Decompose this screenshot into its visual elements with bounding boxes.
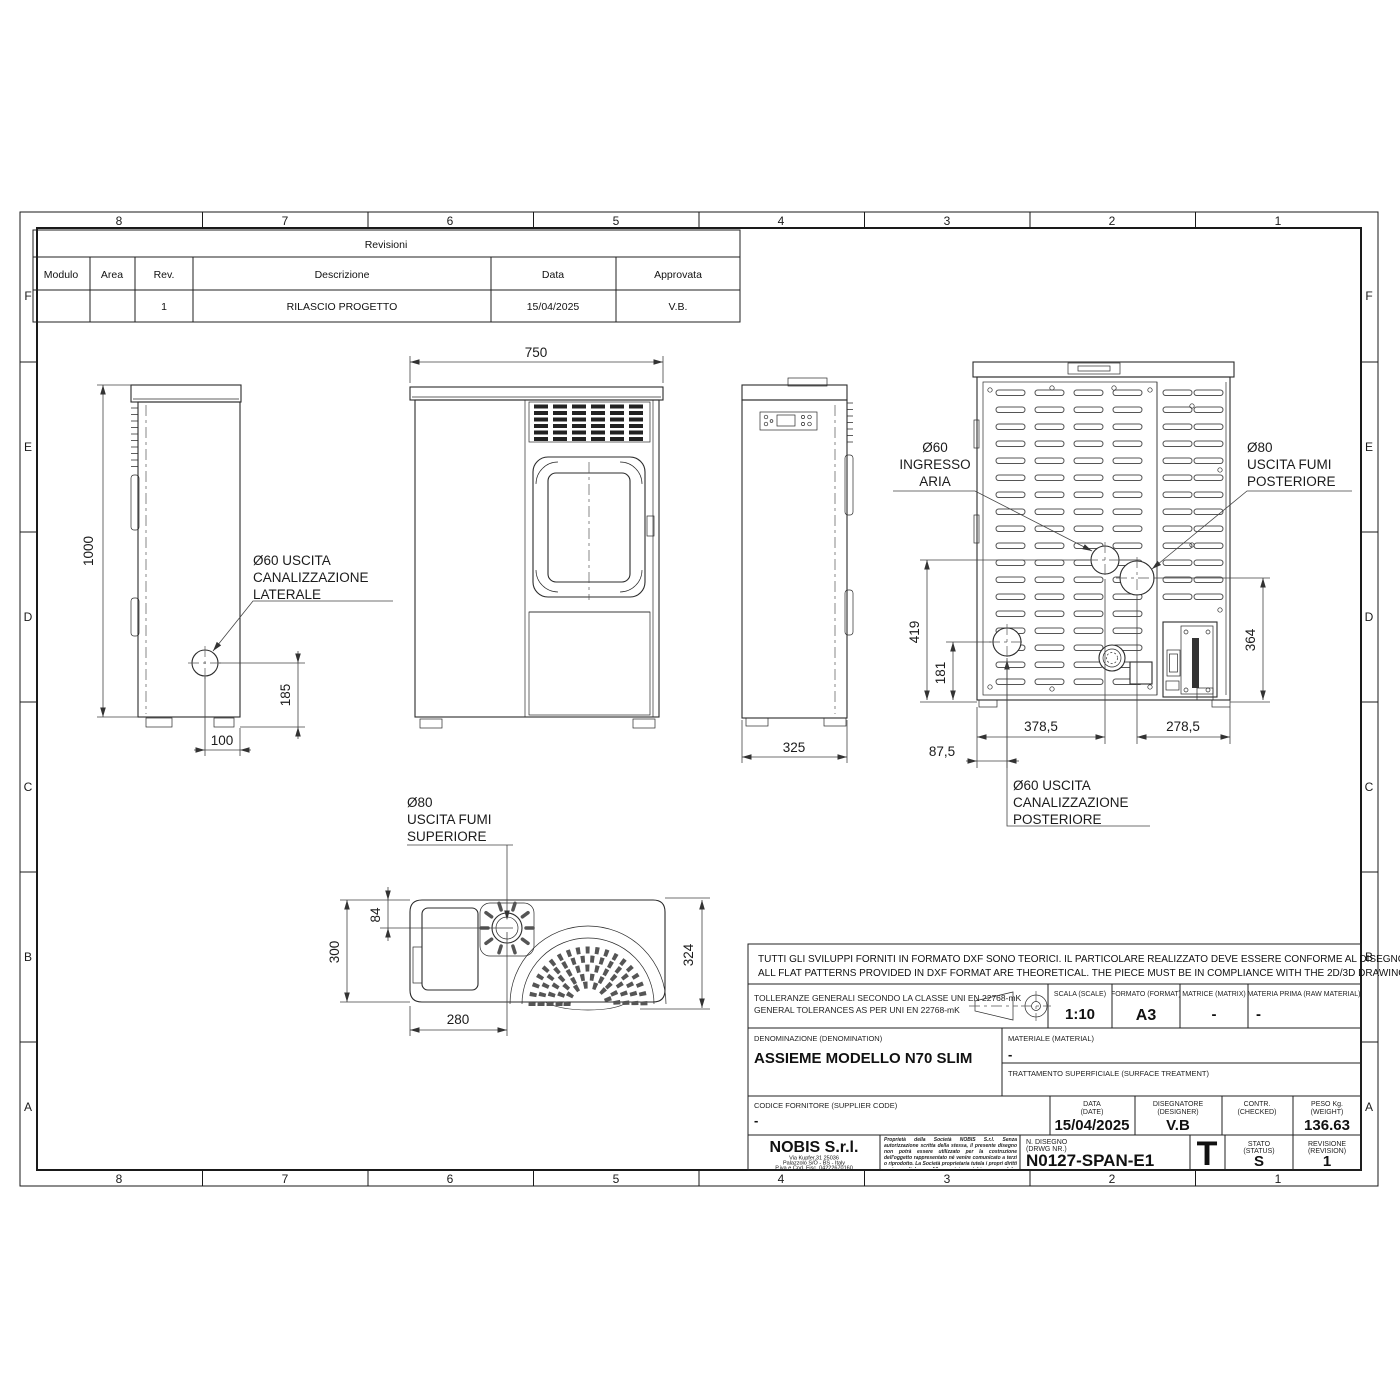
zone-row-right: F xyxy=(1365,289,1372,303)
zone-col-top: 6 xyxy=(447,214,454,228)
air-inlet-label: INGRESSO xyxy=(899,457,970,472)
drawing-sheet: 8 7 6 5 4 3 2 1 8 7 6 5 4 3 2 1 F E D C … xyxy=(0,0,1400,1400)
format-label: FORMATO (FORMAT) xyxy=(1111,991,1181,998)
rev-col-descrizione: Descrizione xyxy=(315,269,370,281)
rev-row-descrizione: RILASCIO PROGETTO xyxy=(287,301,398,313)
denomination-label: DENOMINAZIONE (DENOMINATION) xyxy=(754,1034,883,1043)
dim-300: 300 xyxy=(327,941,342,964)
rev-row-approvata: V.B. xyxy=(669,301,688,313)
zone-col-bottom: 5 xyxy=(613,1172,620,1186)
view-side-right: 325 xyxy=(742,378,853,763)
zone-col-bottom: 8 xyxy=(116,1172,123,1186)
supplier-code-value: - xyxy=(754,1113,758,1128)
rev-col-rev: Rev. xyxy=(154,269,175,281)
dxf-note-en: ALL FLAT PATTERNS PROVIDED IN DXF FORMAT… xyxy=(758,968,1400,979)
denomination-value: ASSIEME MODELLO N70 SLIM xyxy=(754,1050,972,1067)
rear-duct-label: POSTERIORE xyxy=(1013,812,1102,827)
zone-col-top: 2 xyxy=(1109,214,1116,228)
air-inlet-label: Ø60 xyxy=(922,440,948,455)
dxf-note-it: TUTTI GLI SVILUPPI FORNITI IN FORMATO DX… xyxy=(758,954,1400,965)
rear-flue-label: POSTERIORE xyxy=(1247,474,1336,489)
zone-col-bottom: 6 xyxy=(447,1172,454,1186)
dim-419: 419 xyxy=(907,621,922,644)
rev-col-modulo: Modulo xyxy=(44,269,79,281)
sheet-frame xyxy=(20,212,1378,1186)
material-label: MATERIALE (MATERIAL) xyxy=(1008,1034,1094,1043)
dim-364: 364 xyxy=(1243,628,1258,651)
zone-col-bottom: 4 xyxy=(778,1172,785,1186)
supplier-code-label: CODICE FORNITORE (SUPPLIER CODE) xyxy=(754,1101,898,1110)
matrix-label: MATRICE (MATRIX) xyxy=(1182,991,1246,998)
view-top: Ø80 USCITA FUMI SUPERIORE 300 84 280 324 xyxy=(327,795,710,1036)
dim-181: 181 xyxy=(933,662,948,685)
dim-84: 84 xyxy=(368,907,383,923)
zone-row-right: E xyxy=(1365,440,1373,454)
rear-duct-label: CANALIZZAZIONE xyxy=(1013,795,1129,810)
air-inlet-label: ARIA xyxy=(919,474,951,489)
rear-vent-slots-right xyxy=(1163,390,1223,600)
dim-324: 324 xyxy=(681,943,696,966)
date-value: 15/04/2025 xyxy=(1054,1117,1129,1134)
weight-value: 136.63 xyxy=(1304,1117,1350,1134)
top-flue-label: SUPERIORE xyxy=(407,829,487,844)
dim-height-1000: 1000 xyxy=(81,536,96,566)
designer-label-en: (DESIGNER) xyxy=(1157,1109,1198,1116)
date-label-en: (DATE) xyxy=(1081,1109,1104,1116)
tolerances-it: TOLLERANZE GENERALI SECONDO LA CLASSE UN… xyxy=(754,993,1022,1003)
material-value: - xyxy=(1008,1047,1012,1062)
format-value: A3 xyxy=(1136,1007,1157,1024)
rev-col-data: Data xyxy=(542,269,564,281)
zone-col-bottom: 2 xyxy=(1109,1172,1116,1186)
dim-depth-325: 325 xyxy=(783,740,806,755)
raw-material-label: MATERIA PRIMA (RAW MATERIAL) xyxy=(1247,991,1360,998)
weight-label: PESO Kg. xyxy=(1311,1101,1343,1108)
status-label: STATO xyxy=(1248,1141,1271,1148)
date-label: DATA xyxy=(1083,1101,1101,1108)
rear-duct-label: Ø60 USCITA xyxy=(1013,778,1091,793)
power-box xyxy=(1163,622,1217,700)
display xyxy=(777,415,795,426)
legal-notice: Proprietà della Società NOBIS S.r.l. Sen… xyxy=(884,1137,1017,1168)
rev-row-data: 15/04/2025 xyxy=(527,301,580,313)
status-value: S xyxy=(1254,1153,1264,1170)
zone-row-left: D xyxy=(24,610,33,624)
hopper-lid xyxy=(422,908,478,990)
side-duct-label: Ø60 USCITA xyxy=(253,553,331,568)
drawing-number-label: N. DISEGNO xyxy=(1026,1139,1068,1146)
view-rear: Ø60 INGRESSO ARIA Ø80 USCITA FUMI POSTER… xyxy=(893,362,1352,827)
zone-row-left: F xyxy=(24,289,31,303)
dim-87-5: 87,5 xyxy=(929,744,955,759)
checked-label: CONTR. xyxy=(1244,1101,1271,1108)
zone-col-top: 4 xyxy=(778,214,785,228)
rev-col-approvata: Approvata xyxy=(654,269,702,281)
matrix-value: - xyxy=(1212,1006,1217,1023)
dim-hole-100: 100 xyxy=(211,733,234,748)
weight-label-en: (WEIGHT) xyxy=(1311,1109,1344,1116)
legal-notice-it: Proprietà della Società NOBIS S.r.l. Sen… xyxy=(884,1137,1017,1168)
zone-row-right: D xyxy=(1365,610,1374,624)
sheet-marker: T xyxy=(1197,1135,1218,1173)
top-grille xyxy=(510,926,666,1006)
company-name: NOBIS S.r.l. xyxy=(770,1139,859,1156)
zone-row-left: A xyxy=(24,1100,32,1114)
zone-col-bottom: 3 xyxy=(944,1172,951,1186)
company-address: P.iva e Cod. Fisc. 04222670160 xyxy=(775,1166,853,1172)
rear-flue-label: Ø80 xyxy=(1247,440,1273,455)
dim-width-750: 750 xyxy=(525,345,548,360)
rev-row-rev: 1 xyxy=(161,301,167,313)
zone-col-top: 1 xyxy=(1275,214,1282,228)
zone-row-right: C xyxy=(1365,780,1374,794)
rev-col-area: Area xyxy=(101,269,123,281)
surface-label: TRATTAMENTO SUPERFICIALE (SURFACE TREATM… xyxy=(1008,1069,1209,1078)
dim-hole-185: 185 xyxy=(278,684,293,707)
scale-value: 1:10 xyxy=(1065,1006,1095,1023)
designer-value: V.B xyxy=(1166,1117,1190,1134)
zone-col-top: 3 xyxy=(944,214,951,228)
revision-table: Revisioni Modulo Area Rev. Descrizione D… xyxy=(33,230,740,322)
zone-col-top: 5 xyxy=(613,214,620,228)
checked-label-en: (CHECKED) xyxy=(1238,1109,1277,1116)
view-side-left: Ø60 USCITA CANALIZZAZIONE LATERALE 1000 … xyxy=(81,385,393,756)
dim-278-5: 278,5 xyxy=(1166,719,1200,734)
zone-row-left: C xyxy=(24,780,33,794)
tolerances-en: GENERAL TOLERANCES AS PER UNI EN 22768-m… xyxy=(754,1005,960,1015)
top-flue-label: USCITA FUMI xyxy=(407,812,492,827)
scale-label: SCALA (SCALE) xyxy=(1054,991,1106,998)
rear-flue-label: USCITA FUMI xyxy=(1247,457,1332,472)
revision-value: 1 xyxy=(1323,1153,1331,1170)
zone-col-bottom: 7 xyxy=(282,1172,289,1186)
zone-col-bottom: 1 xyxy=(1275,1172,1282,1186)
rating-label xyxy=(1192,638,1199,688)
side-duct-label: LATERALE xyxy=(253,587,321,602)
title-block: TUTTI GLI SVILUPPI FORNITI IN FORMATO DX… xyxy=(748,944,1400,1173)
view-front: 750 xyxy=(410,345,663,728)
zone-row-left: E xyxy=(24,440,32,454)
zone-col-top: 8 xyxy=(116,214,123,228)
zone-row-right: A xyxy=(1365,1100,1373,1114)
cad-drawing-canvas: 8 7 6 5 4 3 2 1 8 7 6 5 4 3 2 1 F E D C … xyxy=(0,0,1400,1400)
zone-row-left: B xyxy=(24,950,32,964)
side-duct-label: CANALIZZAZIONE xyxy=(253,570,369,585)
zone-col-top: 7 xyxy=(282,214,289,228)
drawing-number-value: N0127-SPAN-E1 xyxy=(1026,1151,1154,1170)
dim-280: 280 xyxy=(447,1012,470,1027)
dim-378-5: 378,5 xyxy=(1024,719,1058,734)
raw-material-value: - xyxy=(1256,1006,1261,1023)
rear-opening xyxy=(1130,662,1152,684)
revision-label: REVISIONE xyxy=(1308,1141,1346,1148)
designer-label: DISEGNATORE xyxy=(1153,1101,1204,1108)
exhaust-fan xyxy=(1099,645,1125,671)
revision-table-title: Revisioni xyxy=(365,239,408,251)
top-flue-label: Ø80 xyxy=(407,795,433,810)
